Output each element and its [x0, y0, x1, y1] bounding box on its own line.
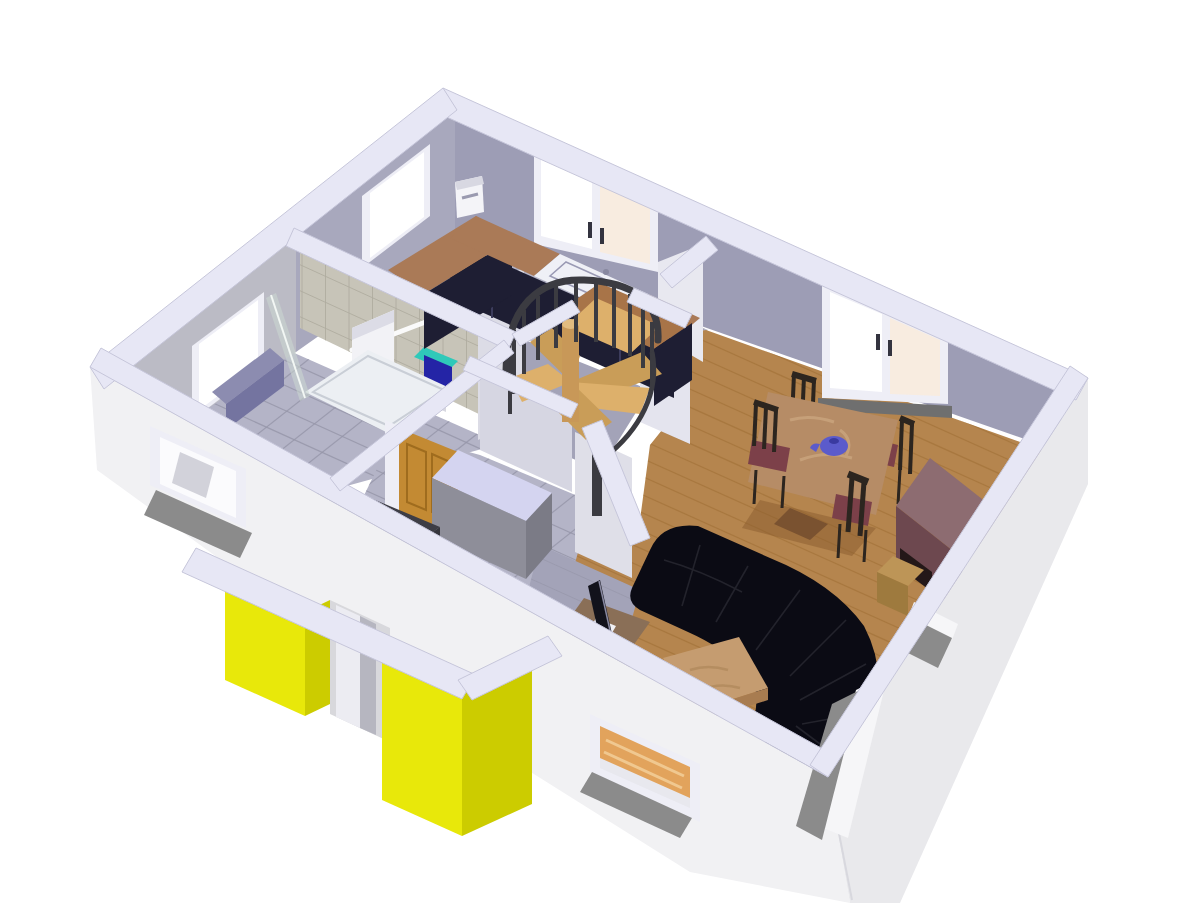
coffee-machine	[455, 176, 484, 218]
render-canvas	[0, 0, 1181, 903]
faucet	[603, 269, 609, 275]
teapot-lid	[829, 438, 839, 444]
home-3d-view[interactable]	[0, 0, 1181, 903]
